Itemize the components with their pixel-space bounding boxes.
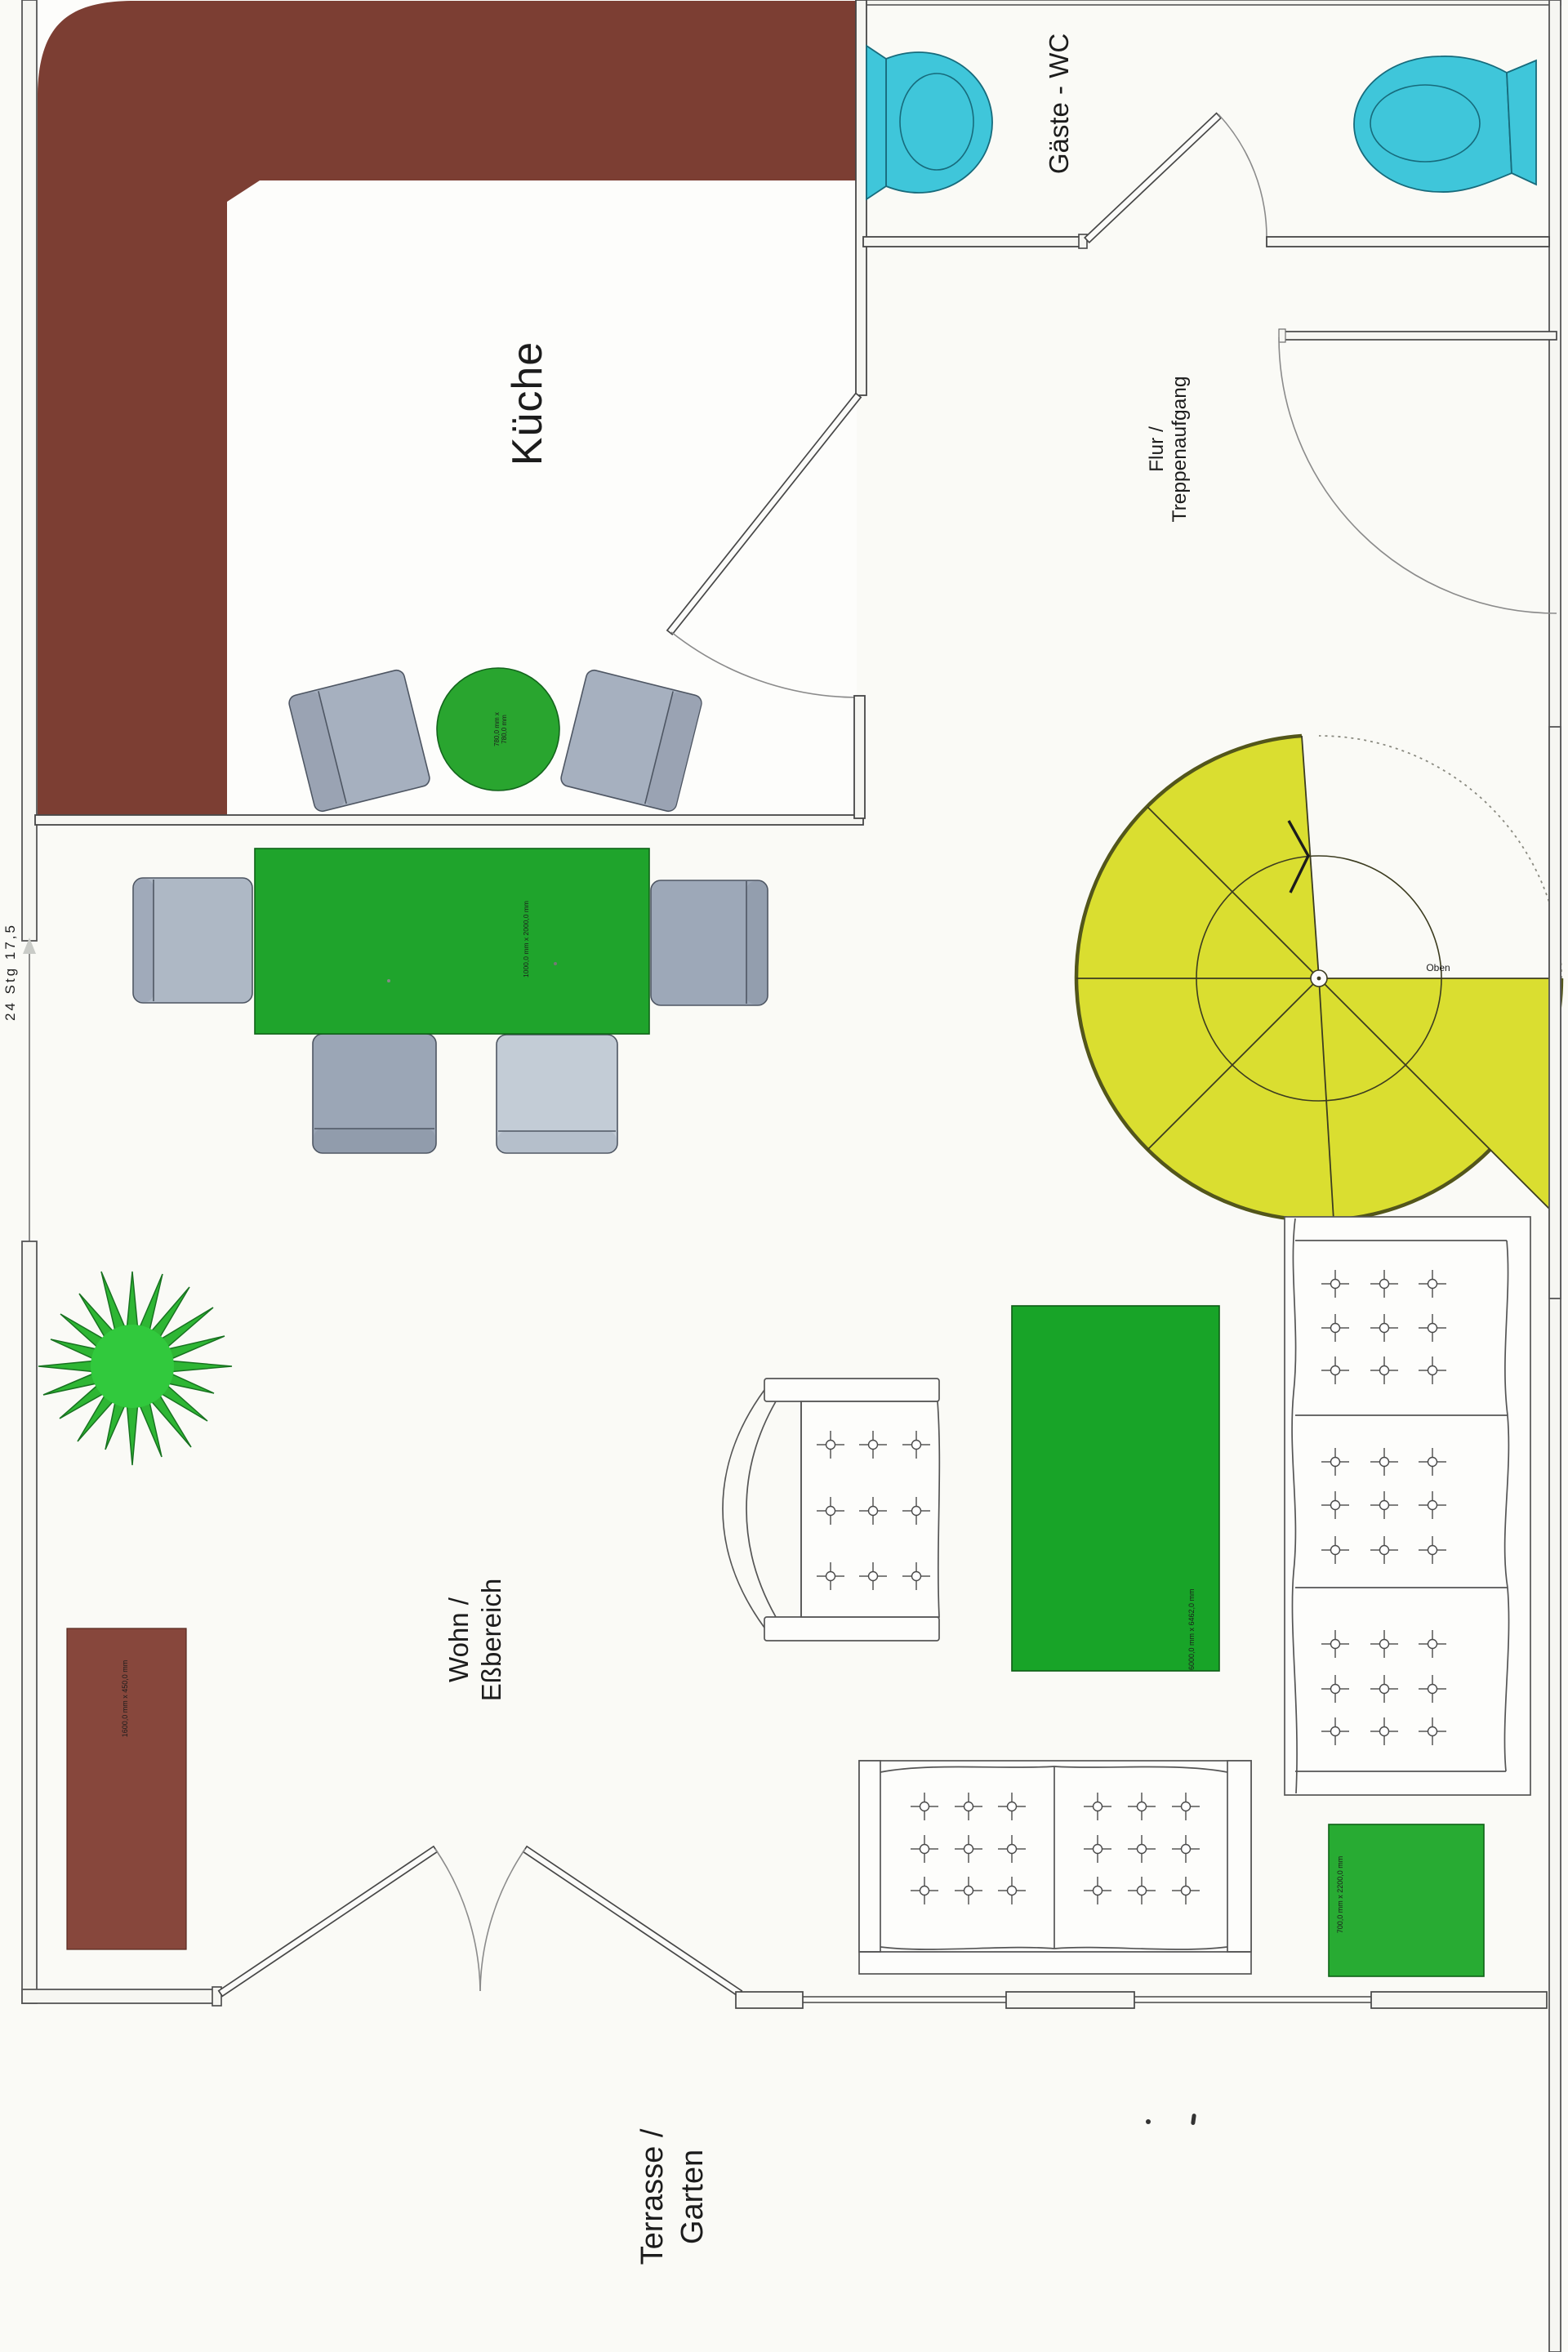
svg-text:1000,0 mm x 2000,0 mm: 1000,0 mm x 2000,0 mm bbox=[522, 901, 530, 978]
svg-text:Flur /: Flur / bbox=[1146, 426, 1168, 472]
svg-text:Küche: Küche bbox=[504, 341, 551, 465]
svg-text:1600,0 mm x 450,0 mm: 1600,0 mm x 450,0 mm bbox=[121, 1660, 129, 1738]
svg-text:780,0 mm x: 780,0 mm x bbox=[493, 712, 501, 746]
svg-text:24 Stg 17,5: 24 Stg 17,5 bbox=[2, 923, 18, 1021]
svg-text:Terrasse /: Terrasse / bbox=[635, 2128, 670, 2265]
svg-text:Eßbereich: Eßbereich bbox=[476, 1579, 506, 1701]
svg-text:Garten: Garten bbox=[675, 2149, 710, 2244]
svg-text:700,0 mm x 2200,0 mm: 700,0 mm x 2200,0 mm bbox=[1336, 1856, 1344, 1934]
svg-text:Treppenaufgang: Treppenaufgang bbox=[1169, 376, 1191, 523]
svg-text:Oben: Oben bbox=[1426, 962, 1450, 973]
svg-text:Gäste - WC: Gäste - WC bbox=[1044, 33, 1074, 174]
svg-text:6000,0 mm x 6462,0 mm: 6000,0 mm x 6462,0 mm bbox=[1187, 1588, 1196, 1670]
svg-text:780,0 mm: 780,0 mm bbox=[501, 715, 508, 744]
svg-text:Wohn /: Wohn / bbox=[443, 1597, 474, 1682]
